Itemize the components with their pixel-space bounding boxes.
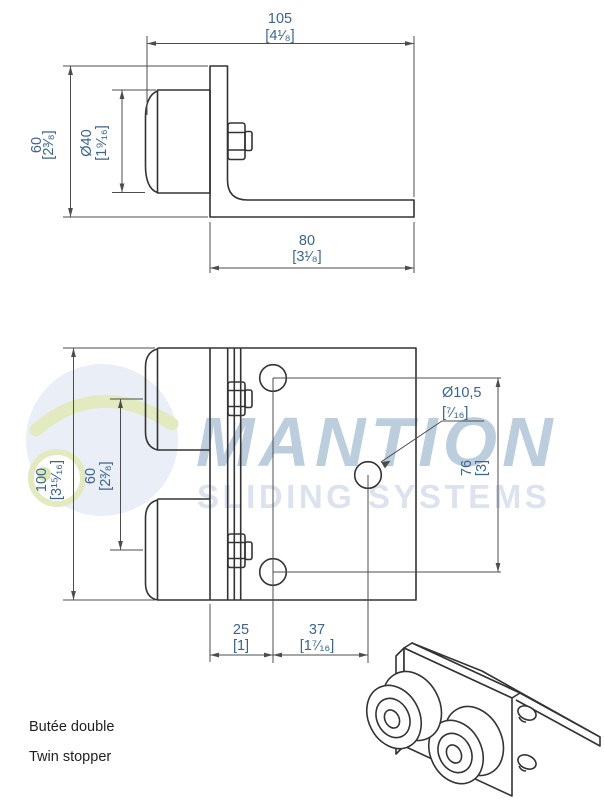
dim-spacing-inch: [2³⁄₈] <box>98 461 114 490</box>
dim-leg-mm: 80 <box>299 233 315 249</box>
plan-nut-bottom <box>228 534 245 568</box>
dim-spacing-mm: 60 <box>83 468 99 484</box>
dim-offset2-mm: 37 <box>309 622 325 638</box>
side-nut <box>228 123 245 160</box>
dim-width-inch: [3¹⁵⁄₁₆] <box>49 460 65 500</box>
dim-depth-inch: [4¹⁄₈] <box>265 28 294 44</box>
iso-hole-1 <box>516 703 539 723</box>
dim-leg-inch: [3¹⁄₈] <box>292 249 321 265</box>
dim-offset2-inch: [1⁷⁄₁₆] <box>300 638 335 654</box>
dim-105-lines <box>147 36 414 197</box>
side-bolt-tip <box>245 132 252 151</box>
dim-hole-mm: Ø10,5 <box>442 385 482 401</box>
dim-hole-inch: [⁷⁄₁₆] <box>442 405 468 421</box>
technical-drawing-page: MANTION SLIDING SYSTEMS 105 [4¹⁄₈] 60 [2… <box>0 0 604 800</box>
dim-buffer-inch: [1⁹⁄₁₆] <box>94 125 110 161</box>
iso-hole-2 <box>516 752 539 772</box>
dim-hole-span-inch: [3] <box>474 460 490 476</box>
side-view-dimension-lines <box>63 36 414 273</box>
side-bracket-outline <box>210 66 414 217</box>
dim-offset1-mm: 25 <box>233 622 249 638</box>
drawing-canvas: MANTION SLIDING SYSTEMS 105 [4¹⁄₈] 60 [2… <box>0 0 604 800</box>
dim-offset1-inch: [1] <box>233 638 249 654</box>
side-view <box>146 66 415 217</box>
dim-buffer-mm: Ø40 <box>79 129 95 156</box>
product-captions: Butée double Twin stopper <box>29 719 114 765</box>
dim-width-mm: 100 <box>34 468 50 492</box>
plan-nut-bottom-facets <box>228 543 245 559</box>
dim-hole-span-mm: 76 <box>459 460 475 476</box>
watermark-brand-text: MANTION <box>196 403 558 481</box>
plan-bolt-tip-bottom <box>245 542 252 560</box>
watermark-tagline-text: SLIDING SYSTEMS <box>197 478 550 515</box>
caption-english: Twin stopper <box>29 749 111 765</box>
dim-height-inch: [2³⁄₈] <box>41 130 57 159</box>
dim-40-lines <box>112 90 156 193</box>
side-nut-facets <box>228 133 245 151</box>
dim-depth-mm: 105 <box>268 11 292 27</box>
side-view-arrows <box>68 41 414 270</box>
side-buffer-body <box>158 90 211 193</box>
side-view-dimension-labels: 105 [4¹⁄₈] 60 [2³⁄₈] Ø40 [1⁹⁄₁₆] 80 [3¹⁄… <box>29 11 322 265</box>
caption-french: Butée double <box>29 719 114 735</box>
isometric-view <box>356 643 600 796</box>
